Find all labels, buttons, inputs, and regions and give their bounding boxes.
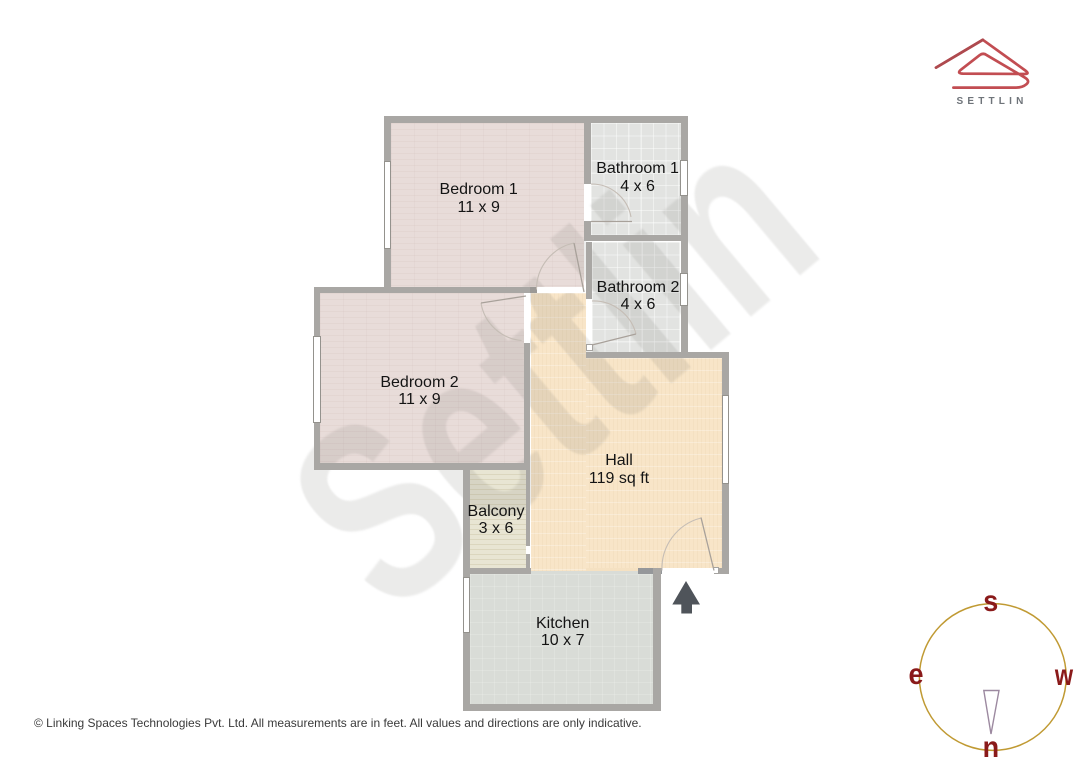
svg-text:e: e bbox=[908, 658, 923, 692]
svg-text:w: w bbox=[1054, 658, 1073, 691]
svg-text:n: n bbox=[983, 731, 999, 764]
svg-text:s: s bbox=[983, 585, 998, 619]
